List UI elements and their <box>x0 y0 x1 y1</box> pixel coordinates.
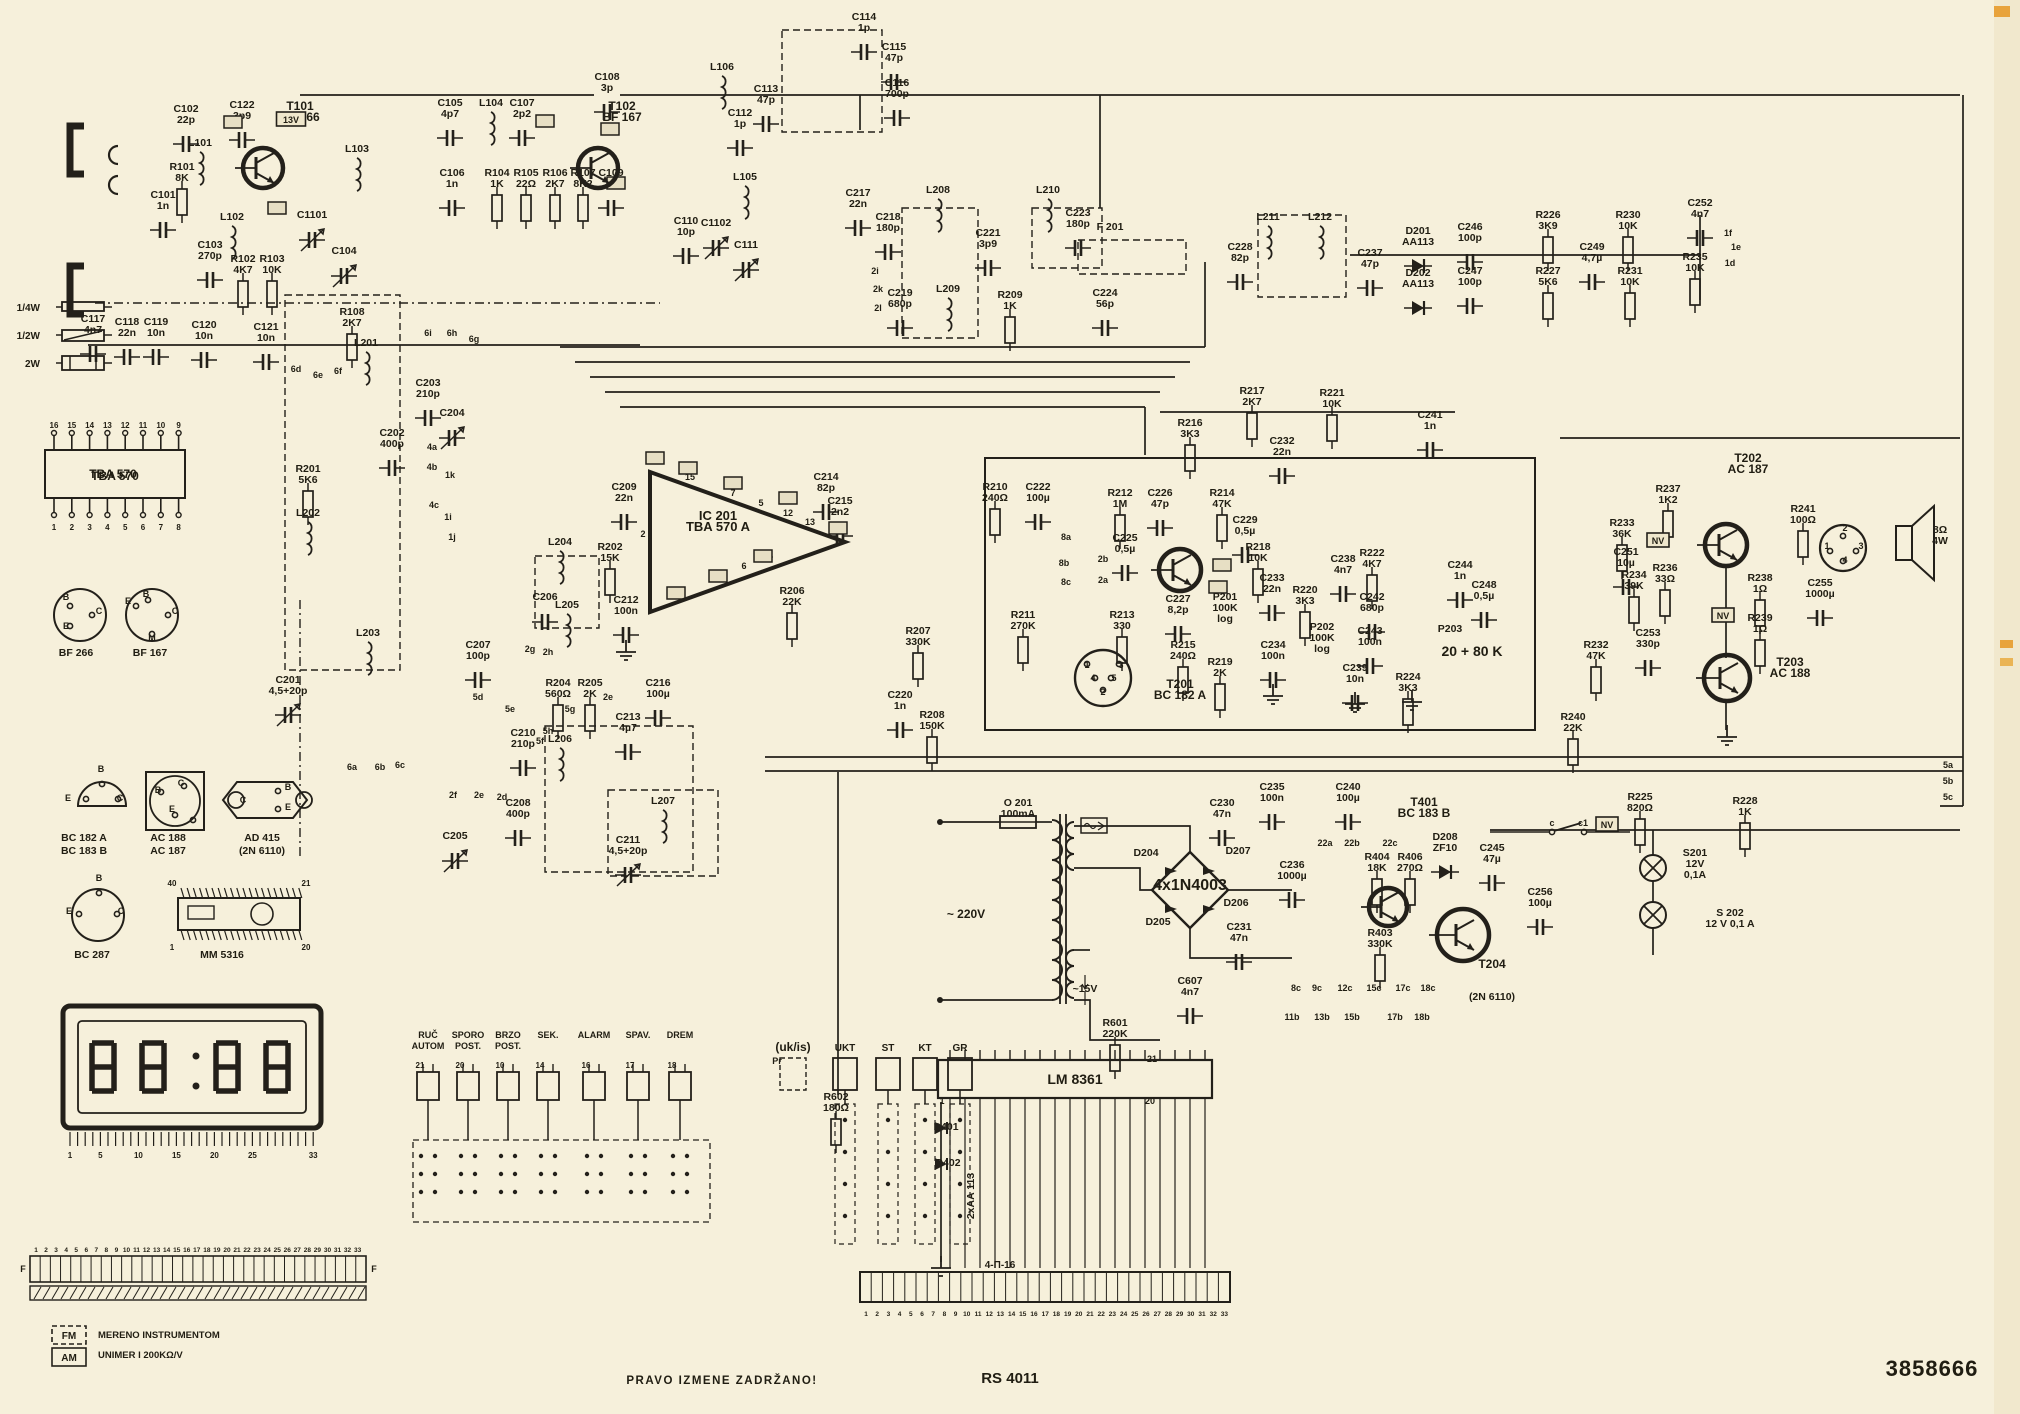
label-l103: L103 <box>345 143 369 155</box>
tba570-pin: 12 <box>121 421 130 430</box>
label-ac-187: AC 187 <box>150 845 186 857</box>
label-l207: L207 <box>651 795 675 807</box>
label-r406: R406270Ω <box>1397 851 1423 874</box>
main-strip-number: 21 <box>1086 1311 1094 1318</box>
label-c118: C11822n <box>115 316 140 339</box>
label-40: 40 <box>168 879 177 888</box>
label-c246: C246100p <box>1457 221 1482 244</box>
left-strip-number: 32 <box>344 1247 352 1254</box>
voltage-tag: 13V <box>283 115 299 125</box>
switch-label-5: SPAV. <box>626 1030 651 1040</box>
label-4a: 4a <box>427 442 438 452</box>
label-r103: R10310K <box>259 253 284 276</box>
pad <box>923 1214 927 1218</box>
label-r403: R403330K <box>1367 927 1393 950</box>
label-15b: 15b <box>1344 1012 1360 1022</box>
label-6e: 6e <box>313 370 323 380</box>
label-r211: R211270K <box>1010 609 1036 632</box>
tba570-pin: 7 <box>159 523 164 532</box>
main-strip-number: 18 <box>1053 1311 1061 1318</box>
label-mm-5316: MM 5316 <box>200 949 244 961</box>
main-strip-number: 10 <box>963 1311 971 1318</box>
label-c223: C223180p <box>1065 207 1090 230</box>
label-1: 1 <box>170 943 175 952</box>
label-c225: C2250,5µ <box>1112 532 1137 555</box>
pad <box>473 1154 477 1158</box>
footer-note: PRAVO IZMENE ZADRŽANO! <box>626 1374 817 1387</box>
label-l211: L211 <box>1256 211 1280 223</box>
label-c102: C10222p <box>173 103 198 126</box>
label-15c: 15c <box>1366 983 1381 993</box>
label--220v: ~ 220V <box>947 907 985 921</box>
left-strip-number: 22 <box>243 1247 251 1254</box>
strip-letter: F <box>371 1264 377 1274</box>
label-17c: 17c <box>1395 983 1410 993</box>
display-colon <box>193 1053 200 1060</box>
label-20: 20 <box>302 943 311 952</box>
main-strip-number: 23 <box>1109 1311 1117 1318</box>
voltage-tag-box <box>679 462 697 474</box>
display-scale: 25 <box>248 1151 257 1160</box>
label-r233: R23336K <box>1609 517 1634 540</box>
voltage-tag-box <box>268 202 286 214</box>
main-strip-number: 17 <box>1042 1311 1050 1318</box>
label-c208: C208400p <box>505 797 530 820</box>
lm8361-label: LM 8361 <box>1047 1071 1102 1087</box>
label-l204: L204 <box>548 536 572 548</box>
label-e: E <box>65 793 71 803</box>
label-r226: R2263K9 <box>1535 209 1560 232</box>
label-2: 2 <box>640 529 645 539</box>
label-r224: R2243K3 <box>1395 671 1420 694</box>
pad <box>923 1182 927 1186</box>
label-c: C <box>96 606 103 616</box>
label-c113: C11347p <box>754 83 779 106</box>
label-2f: 2f <box>449 790 458 800</box>
pad <box>419 1190 423 1194</box>
label-r404: R40418K <box>1364 851 1389 874</box>
label-bf-167: BF 167 <box>133 647 168 659</box>
label-r106: R1062K7 <box>542 167 567 190</box>
main-strip-number: 7 <box>931 1311 935 1318</box>
left-strip-number: 28 <box>304 1247 312 1254</box>
legend-2: 2W <box>25 359 41 370</box>
label-c218: C218180p <box>875 211 900 234</box>
left-strip-number: 26 <box>284 1247 292 1254</box>
edge-mark <box>2000 658 2013 666</box>
left-strip-number: 16 <box>183 1247 191 1254</box>
label-c206: C206 <box>532 591 557 603</box>
label-c219: C219680p <box>887 287 912 310</box>
label-c243: C243100n <box>1357 625 1382 648</box>
label-r216: R2163K3 <box>1177 417 1202 440</box>
main-strip-number: 33 <box>1221 1311 1229 1318</box>
voltage-tag-box <box>829 522 847 534</box>
tba570-pin: 4 <box>105 523 110 532</box>
label-r225: R225820Ω <box>1627 791 1653 814</box>
left-strip-number: 1 <box>34 1247 38 1254</box>
display-scale: 33 <box>309 1151 318 1160</box>
label-f-201: F 201 <box>1097 221 1124 233</box>
label-1i: 1i <box>444 512 452 522</box>
label-r230: R23010K <box>1615 209 1640 232</box>
label-c103: C103270p <box>197 239 222 262</box>
label-c203: C203210p <box>415 377 440 400</box>
voltage-tag-box <box>779 492 797 504</box>
label-c252: C2524n7 <box>1687 197 1712 220</box>
label-l212: L212 <box>1308 211 1332 223</box>
display-scale: 1 <box>68 1151 73 1160</box>
switch-label-6: DREM <box>667 1030 694 1040</box>
left-strip-number: 11 <box>133 1247 140 1254</box>
label-l205: L205 <box>555 599 579 611</box>
label-l102: L102 <box>220 211 244 223</box>
label-bc-287: BC 287 <box>74 949 110 961</box>
label-c210: C210210p <box>510 727 535 750</box>
label-r204: R204560Ω <box>545 677 571 700</box>
label-s201: S20112V0,1A <box>1683 847 1708 881</box>
label-c247: C247100p <box>1457 265 1482 288</box>
label-c228: C22882p <box>1227 241 1252 264</box>
strip-letter: F <box>20 1264 26 1274</box>
label-1e: 1e <box>1731 242 1741 252</box>
pad <box>513 1190 517 1194</box>
label-c238: C2384n7 <box>1330 553 1355 576</box>
pad <box>671 1154 675 1158</box>
label-6h: 6h <box>447 328 458 338</box>
label-c231: C23147n <box>1226 921 1251 944</box>
label-l101: L101 <box>188 137 212 149</box>
label-5g: 5g <box>565 704 576 714</box>
label-c248: C2480,5µ <box>1471 579 1496 602</box>
label-r232: R23247K <box>1583 639 1608 662</box>
display-scale: 5 <box>98 1151 103 1160</box>
label-r240: R24022K <box>1560 711 1585 734</box>
label-2xaa-113: 2xAA 113 <box>965 1173 977 1219</box>
tba570-pin: 14 <box>85 421 94 430</box>
label-b: B <box>285 782 292 792</box>
label-2h: 2h <box>543 647 554 657</box>
label-5d: 5d <box>473 692 484 702</box>
meter-note-line2: UNIMER I 200KΩ/V <box>98 1350 183 1361</box>
label-c229: C2290,5µ <box>1232 514 1257 537</box>
label-l202: L202 <box>296 507 320 519</box>
tba570-pin: 11 <box>139 421 148 430</box>
voltage-tag-box <box>754 550 772 562</box>
tba570-pin: 6 <box>141 523 146 532</box>
pad <box>643 1172 647 1176</box>
label-l104: L104 <box>479 97 503 109</box>
pad <box>459 1172 463 1176</box>
main-strip-number: 2 <box>875 1311 879 1318</box>
pad <box>643 1190 647 1194</box>
main-strip-number: 29 <box>1176 1311 1184 1318</box>
band-switch-label-0: UKT <box>835 1043 856 1054</box>
edge-mark <box>2000 640 2013 648</box>
left-strip-number: 19 <box>213 1247 221 1254</box>
label-ad-415: AD 415 <box>244 832 280 844</box>
pad <box>629 1172 633 1176</box>
pad <box>643 1154 647 1158</box>
tba570-pin: 9 <box>176 421 181 430</box>
label-c235: C235100n <box>1259 781 1284 804</box>
pad <box>473 1172 477 1176</box>
pad <box>958 1118 962 1122</box>
left-strip-number: 3 <box>54 1247 58 1254</box>
label-r102: R1024K7 <box>230 253 255 276</box>
label-2l: 2l <box>874 303 882 313</box>
left-strip-number: 18 <box>203 1247 211 1254</box>
pad <box>671 1190 675 1194</box>
label-r210: R210240Ω <box>982 481 1008 504</box>
label-r218: R21810K <box>1245 541 1270 564</box>
label-l209: L209 <box>936 283 960 295</box>
label-c116: C116700p <box>885 77 910 100</box>
pad <box>539 1172 543 1176</box>
label-c202: C202400p <box>379 427 404 450</box>
pad <box>958 1150 962 1154</box>
label-d201: D201AA113 <box>1402 225 1434 248</box>
pad <box>539 1154 543 1158</box>
pad <box>599 1154 603 1158</box>
left-strip-number: 25 <box>274 1247 282 1254</box>
label-d208: D208ZF10 <box>1432 831 1457 854</box>
pad <box>685 1190 689 1194</box>
voltage-tag-box <box>1209 581 1227 593</box>
main-strip-number: 32 <box>1210 1311 1218 1318</box>
label-r208: R208150K <box>919 709 945 732</box>
label-b: B <box>96 873 103 883</box>
band-switch-label-1: ST <box>882 1043 895 1054</box>
label-9c: 9c <box>1312 983 1322 993</box>
label-c607: C6074n7 <box>1177 975 1202 998</box>
tba570-pin: 1 <box>52 523 57 532</box>
label-2k: 2k <box>873 284 884 294</box>
label-6g: 6g <box>469 334 480 344</box>
label-l106: L106 <box>710 61 734 73</box>
edge-mark <box>1994 6 2010 17</box>
left-strip-number: 15 <box>173 1247 181 1254</box>
main-strip-number: 14 <box>1008 1311 1016 1318</box>
main-strip-number: 31 <box>1198 1311 1206 1318</box>
main-strip-number: 12 <box>986 1311 994 1318</box>
main-strip-number: 15 <box>1019 1311 1027 1318</box>
label-1j: 1j <box>448 532 456 542</box>
label-r237: R2371K2 <box>1655 483 1680 506</box>
voltage-tag-box <box>646 452 664 464</box>
fm-tag: FM <box>62 1331 76 1342</box>
label-r202: R20215K <box>597 541 622 564</box>
label-c205: C205 <box>442 830 467 842</box>
left-strip-number: 2 <box>44 1247 48 1254</box>
label-c230: C23047n <box>1209 797 1234 820</box>
label-1f: 1f <box>1724 228 1733 238</box>
label-c214: C21482p <box>813 471 838 494</box>
label-c1102: C1102 <box>701 217 732 229</box>
main-strip-number: 26 <box>1142 1311 1150 1318</box>
band-switch-label-3: GR <box>953 1043 969 1054</box>
label-t204: T204 <box>1478 957 1506 971</box>
voltage-tag: NV <box>1652 536 1665 546</box>
left-strip-number: 4 <box>64 1247 68 1254</box>
left-strip-number: 10 <box>123 1247 131 1254</box>
tba570-pin: 15 <box>67 421 76 430</box>
legend-0: 1/4W <box>17 303 41 314</box>
pad <box>499 1154 503 1158</box>
label--2n-6110-: (2N 6110) <box>1469 991 1515 1003</box>
pad <box>843 1214 847 1218</box>
pad <box>553 1172 557 1176</box>
label-1k: 1k <box>445 470 456 480</box>
label-d205: D205 <box>1145 916 1170 928</box>
main-strip-number: 25 <box>1131 1311 1139 1318</box>
pad <box>843 1182 847 1186</box>
label-21: 21 <box>302 879 311 888</box>
label-r206: R20622K <box>779 585 804 608</box>
voltage-tag: NV <box>1717 611 1730 621</box>
label-5h: 5h <box>543 726 554 736</box>
label-c1101: C1101 <box>297 209 328 221</box>
switch-label-3: SEK. <box>537 1030 558 1040</box>
left-strip-number: 31 <box>334 1247 342 1254</box>
voltage-tag-box <box>709 570 727 582</box>
label-l105: L105 <box>733 171 757 183</box>
label-c217: C21722n <box>845 187 870 210</box>
label-c227: C2278,2p <box>1165 593 1190 616</box>
pad <box>459 1154 463 1158</box>
pad <box>923 1118 927 1122</box>
tba570-pin: 2 <box>70 523 75 532</box>
main-strip-number: 4 <box>898 1311 902 1318</box>
band-group: (uk/is) <box>775 1040 810 1054</box>
pad <box>886 1150 890 1154</box>
schematic-page: C1011nL101L102C10222pC1223p9R1018KT101BF… <box>0 0 2020 1414</box>
pad <box>513 1172 517 1176</box>
label-bc-183-b: BC 183 B <box>61 845 108 857</box>
pad <box>886 1118 890 1122</box>
label-6: 6 <box>741 561 746 571</box>
page-edge <box>1994 0 2020 1414</box>
label-r601: R601220K <box>1102 1017 1128 1040</box>
pad <box>599 1190 603 1194</box>
pad <box>629 1190 633 1194</box>
switch-label-2: BRZOPOST. <box>495 1030 521 1051</box>
left-strip-number: 5 <box>74 1247 78 1254</box>
pad <box>671 1172 675 1176</box>
label-d207: D207 <box>1225 845 1250 857</box>
label-18c: 18c <box>1420 983 1435 993</box>
label-c226: C22647p <box>1147 487 1172 510</box>
main-strip-number: 19 <box>1064 1311 1072 1318</box>
pad <box>629 1154 633 1158</box>
label-6f: 6f <box>334 366 343 376</box>
pad <box>499 1172 503 1176</box>
label-c222: C222100µ <box>1025 481 1050 504</box>
left-strip-number: 13 <box>153 1247 161 1254</box>
label-c215: C2152n2 <box>827 495 852 518</box>
legend-1: 1/2W <box>17 331 41 342</box>
label-r108: R1082K7 <box>339 306 364 329</box>
pad <box>433 1190 437 1194</box>
pad <box>843 1118 847 1122</box>
voltage-tag-box <box>1213 559 1231 571</box>
label-6d: 6d <box>291 364 302 374</box>
pad <box>473 1190 477 1194</box>
left-strip-number: 20 <box>223 1247 231 1254</box>
label--2n-6110-: (2N 6110) <box>239 845 285 857</box>
left-strip-number: 9 <box>115 1247 119 1254</box>
label-5e: 5e <box>505 704 515 714</box>
label-c253: C253330p <box>1635 627 1660 650</box>
main-strip-number: 16 <box>1030 1311 1038 1318</box>
main-strip-number: 6 <box>920 1311 924 1318</box>
label-r220: R2203K3 <box>1292 584 1317 607</box>
tba570-pin: 8 <box>176 523 181 532</box>
label-22b: 22b <box>1344 838 1360 848</box>
pad <box>553 1154 557 1158</box>
label-8c: 8c <box>1291 983 1301 993</box>
circuit-schematic-rs4011: C1011nL101L102C10222pC1223p9R1018KT101BF… <box>0 0 2020 1414</box>
label-r234: R23439K <box>1621 569 1646 592</box>
label-13: 13 <box>805 517 815 527</box>
left-strip-number: 30 <box>324 1247 332 1254</box>
label-c212: C212100n <box>613 594 638 617</box>
tba570-pin: 5 <box>123 523 128 532</box>
pad <box>419 1172 423 1176</box>
label-c105: C1054p7 <box>437 97 462 120</box>
label-e: E <box>285 802 291 812</box>
label-r231: R23110K <box>1617 265 1642 288</box>
label-c224: C22456p <box>1092 287 1117 310</box>
label-5f: 5f <box>536 736 545 746</box>
label-c107: C1072p2 <box>509 97 534 120</box>
label-b: B <box>98 764 105 774</box>
pad <box>599 1172 603 1176</box>
label-5: 5 <box>758 498 763 508</box>
left-strip-number: 14 <box>163 1247 171 1254</box>
main-strip-number: 27 <box>1154 1311 1162 1318</box>
am-tag: AM <box>61 1353 77 1364</box>
label-c249: C2494,7µ <box>1579 241 1604 264</box>
label-r105: R10522Ω <box>513 167 538 190</box>
label-bc-182-a: BC 182 A <box>61 832 107 844</box>
label-c209: C20922n <box>611 481 636 504</box>
main-strip-number: 22 <box>1098 1311 1106 1318</box>
label-p203: P203 <box>1438 623 1463 635</box>
label-c237: C23747p <box>1357 247 1382 270</box>
label-c233: C23322n <box>1259 572 1284 595</box>
voltage-tag-box <box>536 115 554 127</box>
label-4c: 4c <box>429 500 439 510</box>
main-strip-number: 9 <box>954 1311 958 1318</box>
label-5c: 5c <box>1943 792 1953 802</box>
label-r201: R2015K6 <box>295 463 320 486</box>
main-strip-number: 30 <box>1187 1311 1195 1318</box>
label-13b: 13b <box>1314 1012 1330 1022</box>
label-c240: C240100µ <box>1335 781 1360 804</box>
switch-label-1: SPOROPOST. <box>452 1030 485 1051</box>
label-bf-266: BF 266 <box>59 647 94 659</box>
label-4b: 4b <box>427 462 438 472</box>
pad <box>843 1150 847 1154</box>
label-d204: D204 <box>1133 847 1158 859</box>
left-strip-number: 24 <box>264 1247 272 1254</box>
display-scale: 15 <box>172 1151 181 1160</box>
label-12: 12 <box>783 508 793 518</box>
label-r241: R241100Ω <box>1790 503 1816 526</box>
pad <box>585 1154 589 1158</box>
label-8c: 8c <box>1061 577 1071 587</box>
